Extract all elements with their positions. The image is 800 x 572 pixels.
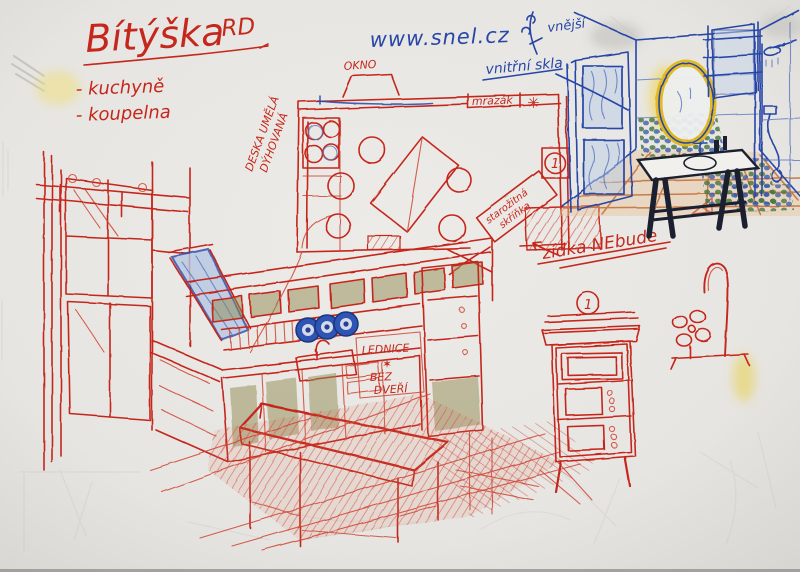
title-suffix-text: RD bbox=[221, 14, 256, 42]
fridge-note-line3: DVEŘÍ bbox=[373, 382, 409, 397]
plan-marker-number: 1 bbox=[551, 157, 559, 172]
window-label: OKNO bbox=[343, 58, 377, 73]
freezer-label: mrazák bbox=[472, 94, 514, 108]
website-url: www.snel.cz bbox=[369, 23, 510, 52]
sketch-canvas: Bítýška RD - kuchyně - koupelna www.snel… bbox=[0, 0, 800, 572]
fridge-note-line2: BEZ bbox=[370, 370, 393, 384]
fridge-note-line1: LEDNICE bbox=[361, 342, 409, 357]
list-item-kitchen: - kuchyně bbox=[75, 76, 164, 100]
sketch-photo: Bítýška RD - kuchyně - koupelna www.snel… bbox=[0, 0, 800, 572]
fridge-note-star: ✶ bbox=[382, 357, 392, 371]
snowflake-symbol: ✳ bbox=[527, 94, 540, 112]
cabinet-marker-number: 1 bbox=[584, 298, 592, 313]
list-item-bathroom: - koupelna bbox=[75, 102, 171, 126]
